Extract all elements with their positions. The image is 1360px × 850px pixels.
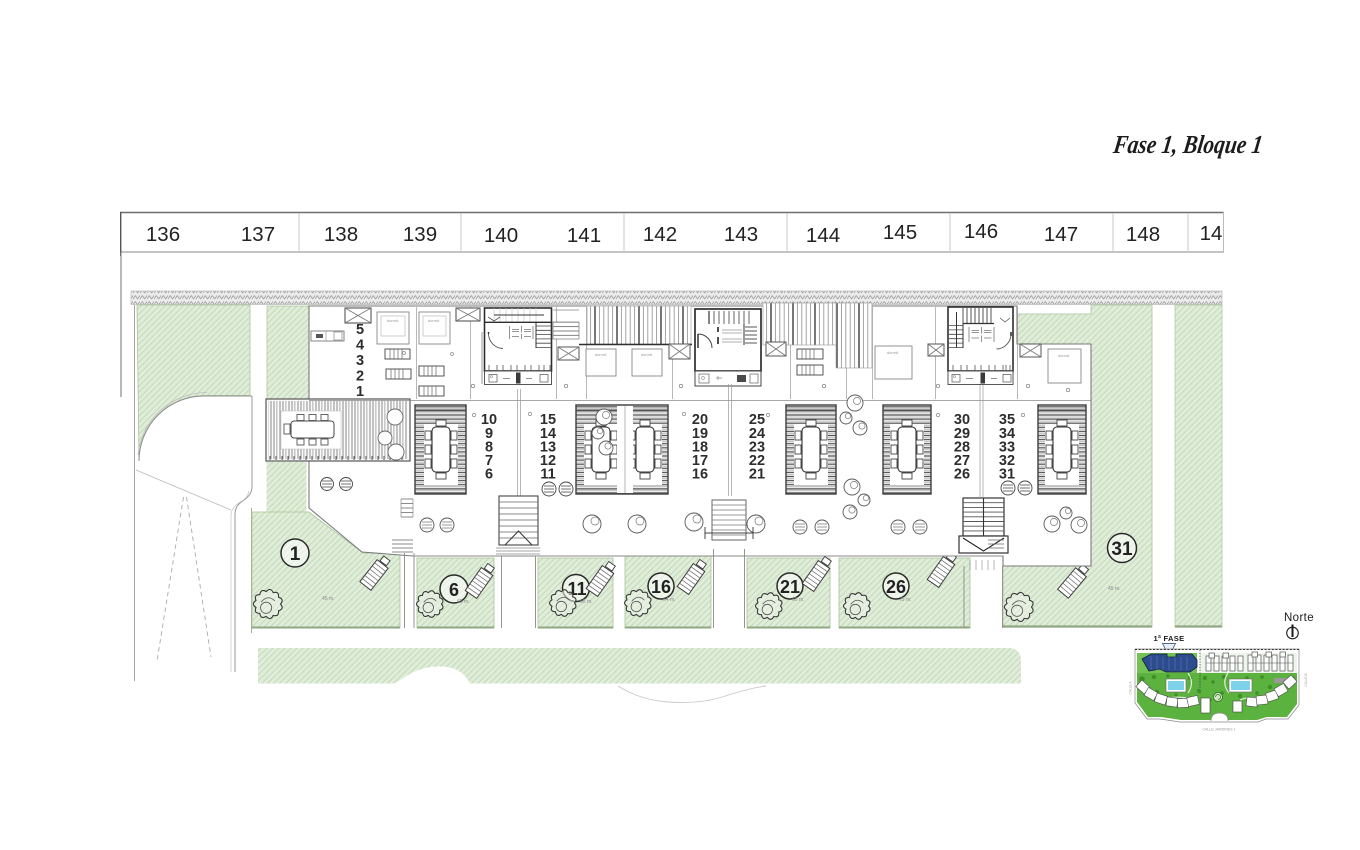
svg-text:141: 141 bbox=[567, 224, 601, 247]
svg-text:dormit.: dormit. bbox=[641, 352, 653, 357]
svg-text:dormit.: dormit. bbox=[595, 352, 607, 357]
svg-text:26: 26 bbox=[886, 577, 906, 597]
svg-text:140: 140 bbox=[484, 224, 518, 247]
svg-text:Norte: Norte bbox=[1284, 612, 1314, 624]
svg-text:142: 142 bbox=[643, 223, 677, 246]
svg-text:dormit.: dormit. bbox=[387, 318, 399, 323]
svg-text:2: 2 bbox=[356, 369, 364, 385]
svg-text:3: 3 bbox=[356, 353, 364, 369]
svg-text:dormit.: dormit. bbox=[887, 350, 899, 355]
svg-text:31: 31 bbox=[999, 467, 1015, 483]
svg-text:CALLE JARDINES 1: CALLE JARDINES 1 bbox=[1202, 728, 1235, 732]
svg-text:Fase 1, Bloque 1: Fase 1, Bloque 1 bbox=[1111, 130, 1265, 159]
svg-text:31: 31 bbox=[1111, 539, 1133, 560]
svg-text:145: 145 bbox=[883, 221, 917, 244]
svg-text:147: 147 bbox=[1044, 223, 1078, 246]
svg-text:1: 1 bbox=[290, 544, 301, 565]
svg-text:21: 21 bbox=[749, 467, 765, 483]
svg-text:16: 16 bbox=[651, 577, 671, 597]
svg-text:CALLE A: CALLE A bbox=[1129, 681, 1133, 695]
svg-text:21: 21 bbox=[780, 577, 800, 597]
svg-text:45 m.: 45 m. bbox=[322, 596, 335, 602]
svg-text:65 m.: 65 m. bbox=[580, 599, 593, 605]
svg-text:64 m.: 64 m. bbox=[663, 597, 676, 603]
svg-text:137: 137 bbox=[241, 223, 275, 246]
svg-text:1: 1 bbox=[356, 384, 364, 400]
svg-text:CALLE B: CALLE B bbox=[1304, 673, 1308, 686]
svg-text:138: 138 bbox=[324, 223, 358, 246]
svg-text:144: 144 bbox=[806, 224, 840, 247]
svg-text:6: 6 bbox=[449, 580, 459, 600]
svg-text:1ª FASE: 1ª FASE bbox=[1153, 634, 1184, 643]
svg-text:75 m.: 75 m. bbox=[899, 597, 912, 603]
svg-text:136: 136 bbox=[146, 223, 180, 246]
svg-text:26: 26 bbox=[954, 467, 970, 483]
svg-text:6: 6 bbox=[485, 467, 493, 483]
svg-text:16: 16 bbox=[692, 467, 708, 483]
svg-text:45 m.: 45 m. bbox=[1108, 586, 1121, 592]
svg-text:139: 139 bbox=[403, 223, 437, 246]
svg-text:dormit.: dormit. bbox=[1058, 353, 1070, 358]
svg-text:65 m.: 65 m. bbox=[792, 597, 805, 603]
svg-text:11: 11 bbox=[540, 467, 555, 483]
svg-text:14: 14 bbox=[1200, 222, 1223, 245]
svg-text:146: 146 bbox=[964, 220, 998, 243]
svg-text:4: 4 bbox=[356, 338, 364, 354]
svg-text:5: 5 bbox=[356, 322, 364, 338]
svg-text:65 m.: 65 m. bbox=[457, 599, 470, 605]
svg-text:dormit.: dormit. bbox=[428, 318, 440, 323]
svg-text:148: 148 bbox=[1126, 223, 1160, 246]
svg-text:143: 143 bbox=[724, 223, 758, 246]
